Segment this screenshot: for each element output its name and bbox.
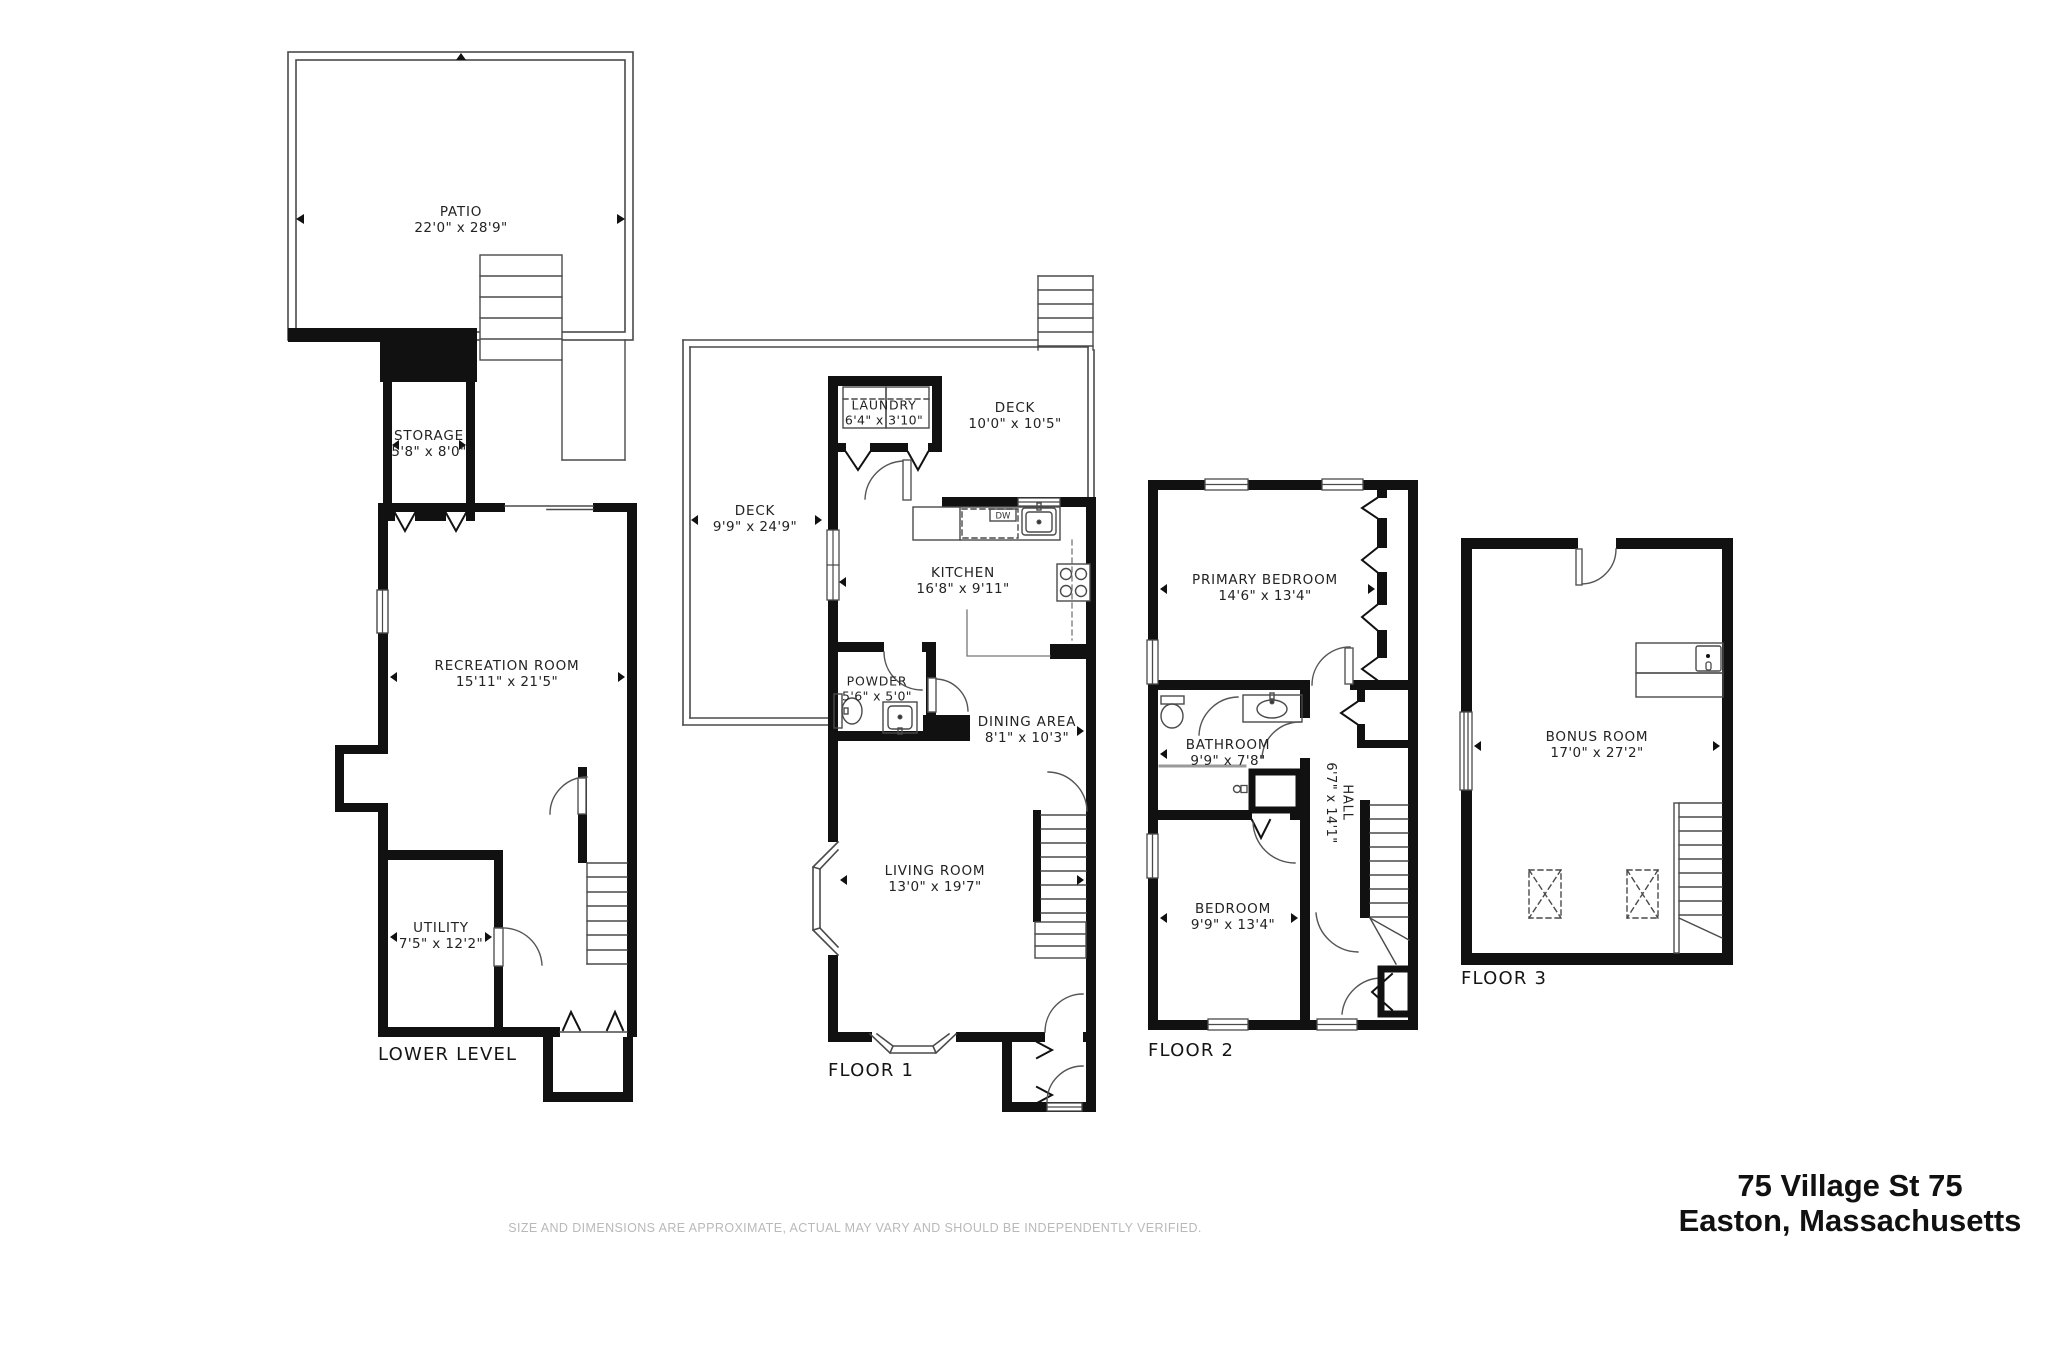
- stairs: [1370, 805, 1409, 964]
- toilet-icon: [1161, 696, 1184, 728]
- property-address: 75 Village St 75 Easton, Massachusetts: [1660, 1168, 2040, 1238]
- dishwasher-label: DW: [996, 512, 1012, 522]
- door-arc: [1252, 820, 1295, 863]
- window: [1460, 712, 1472, 790]
- floor-label-3: FLOOR 3: [1461, 968, 1547, 989]
- sliding-door: [505, 503, 593, 512]
- room-label-bedroom: BEDROOM 9'9" x 13'4": [1191, 902, 1275, 934]
- room-label-patio: PATIO 22'0" x 28'9": [414, 205, 507, 237]
- room-label-living: LIVING ROOM 13'0" x 19'7": [885, 864, 986, 896]
- room-label-dining: DINING AREA 8'1" x 10'3": [978, 715, 1077, 747]
- room-label-hall: HALL 6'7" x 14'1": [1322, 762, 1355, 843]
- door-arc: [928, 678, 968, 712]
- skylights: [1529, 870, 1658, 918]
- room-label-deck-left: DECK 9'9" x 24'9": [713, 504, 797, 536]
- window: [377, 590, 388, 633]
- bay-window: [813, 842, 838, 955]
- room-label-laundry: LAUNDRY 6'4" x 3'10": [845, 398, 923, 428]
- room-label-storage: STORAGE 5'8" x 8'0": [391, 429, 466, 461]
- patio-outline: [288, 52, 633, 340]
- room-label-powder: POWDER 5'6" x 5'0": [842, 674, 912, 704]
- floor-label-lower: LOWER LEVEL: [378, 1044, 517, 1065]
- closet: [1372, 969, 1411, 1014]
- patio-stairs: [480, 255, 625, 460]
- stairs: [587, 863, 627, 964]
- vanity-sink-icon: [1243, 693, 1302, 722]
- bay-window: [870, 1034, 956, 1053]
- closet-door-icon: [1341, 702, 1357, 724]
- room-label-bathroom: BATHROOM 9'9" x 7'8": [1186, 738, 1271, 770]
- entry-doors: [560, 1012, 627, 1032]
- room-label-recreation: RECREATION ROOM 15'11" x 21'5": [435, 659, 580, 691]
- door-arc: [865, 460, 911, 500]
- door-arc: [1312, 647, 1353, 685]
- stairs: [1674, 803, 1722, 953]
- room-label-bonus: BONUS ROOM 17'0" x 27'2": [1546, 730, 1649, 762]
- stairs: [1035, 815, 1086, 958]
- sink-icon: [883, 702, 917, 734]
- sink-icon: [1696, 646, 1721, 671]
- room-label-utility: UTILITY 7'5" x 12'2": [399, 921, 483, 953]
- linen-closet: [1252, 772, 1299, 810]
- floor-edge: [967, 610, 1050, 656]
- door-arc: [1576, 538, 1616, 585]
- floorplan-page: DW: [0, 0, 2048, 1346]
- room-label-deck-right: DECK 10'0" x 10'5": [968, 401, 1061, 433]
- door-arc: [1199, 697, 1238, 735]
- disclaimer-text: SIZE AND DIMENSIONS ARE APPROXIMATE, ACT…: [475, 1221, 1235, 1235]
- entry-doors: [1037, 994, 1083, 1111]
- address-line1: 75 Village St 75: [1660, 1168, 2040, 1203]
- sink-icon: [1022, 503, 1056, 535]
- stove-icon: [1057, 564, 1090, 601]
- floor-label-2: FLOOR 2: [1148, 1040, 1234, 1061]
- door-arc: [494, 928, 542, 966]
- deck-stairs: [1038, 276, 1093, 350]
- door-arcs: [1316, 913, 1381, 1014]
- floor-label-1: FLOOR 1: [828, 1060, 914, 1081]
- tub-faucet-icon: [1234, 786, 1248, 793]
- bifold-door-icon: [846, 452, 928, 470]
- window: [1018, 498, 1060, 506]
- address-line2: Easton, Massachusetts: [1660, 1203, 2040, 1238]
- door-arc: [1048, 772, 1087, 811]
- window: [827, 530, 839, 600]
- floorplan-graphics: DW: [0, 0, 2048, 1346]
- room-label-primary: PRIMARY BEDROOM 14'6" x 13'4": [1192, 573, 1338, 605]
- door-arc: [550, 777, 587, 814]
- room-label-kitchen: KITCHEN 16'8" x 9'11": [916, 566, 1009, 598]
